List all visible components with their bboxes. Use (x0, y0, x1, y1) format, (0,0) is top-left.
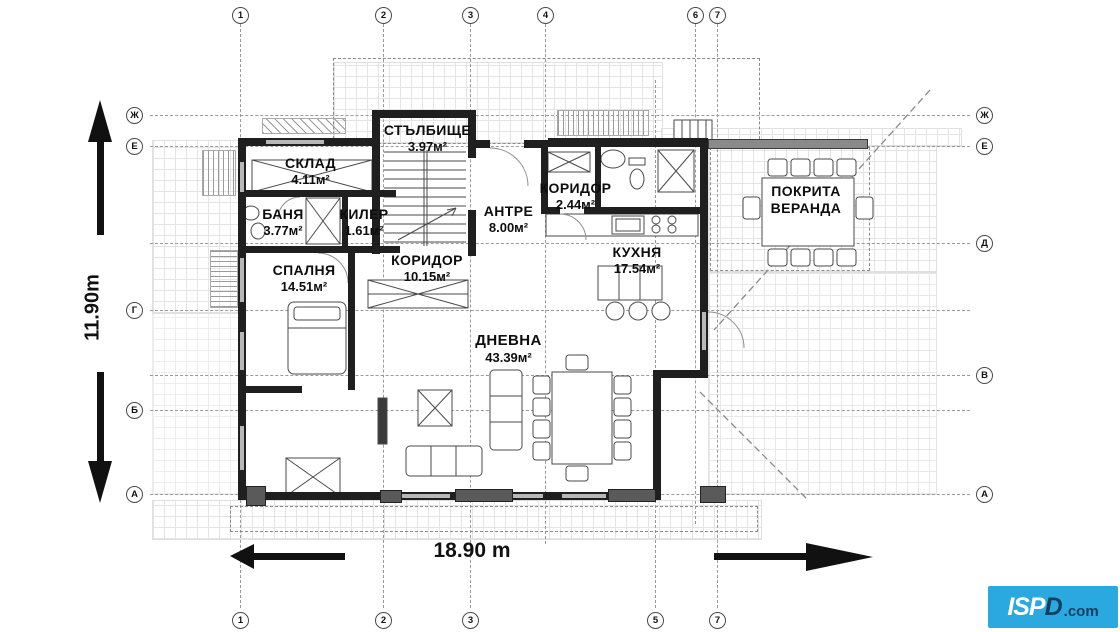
room-label-bathroom: БАНЯ 3.77м² (238, 206, 328, 238)
axis-label: Г (132, 305, 137, 316)
room-name: ДНЕВНА (456, 332, 561, 350)
wall-segment (653, 370, 708, 378)
room-area: 4.11м² (258, 172, 363, 187)
room-name: СТЪЛБИЩЕ (370, 122, 485, 139)
axis-marker-top-4: 4 (537, 7, 554, 24)
hall-closet (548, 152, 590, 172)
room-area: 3.77м² (238, 223, 328, 238)
room-name: КИЛЕР (318, 206, 410, 223)
room-area: 3.97м² (370, 139, 485, 154)
axis-marker-top-7: 7 (709, 7, 726, 24)
window (702, 312, 706, 350)
room-name: КОРИДОР (518, 180, 633, 197)
axis-marker-right-d: Д (976, 235, 993, 252)
axis-label: 1 (238, 10, 243, 21)
dining-set (533, 355, 631, 481)
axis-label: 1 (238, 615, 243, 626)
axis-marker-left-zh: Ж (126, 107, 143, 124)
axis-label: 5 (653, 615, 658, 626)
axis-label: 7 (715, 615, 720, 626)
axis-marker-right-zh: Ж (976, 107, 993, 124)
sofas-coffee-table (406, 370, 522, 476)
vertical-dimension-label: 11.90m (82, 248, 105, 368)
axis-label: В (981, 370, 988, 381)
axis-marker-top-2: 2 (375, 7, 392, 24)
axis-label: 3 (468, 10, 473, 21)
room-name: КУХНЯ (578, 244, 696, 261)
pier (700, 486, 726, 503)
pier (246, 486, 266, 506)
room-label-bedroom: СПАЛНЯ 14.51м² (250, 262, 358, 294)
axis-marker-top-1: 1 (232, 7, 249, 24)
room-name: АНТРЕ (456, 203, 561, 220)
axis-label: 2 (381, 10, 386, 21)
exterior-steps (202, 150, 236, 196)
axis-marker-left-e: Е (126, 138, 143, 155)
room-name: ПОКРИТА ВЕРАНДА (756, 183, 856, 216)
window (266, 140, 324, 144)
pier (608, 489, 656, 502)
room-area: 1.61м² (318, 223, 410, 238)
horizontal-dimension-label: 18.90 m (392, 539, 552, 563)
axis-marker-left-a: А (126, 486, 143, 503)
axis-label: 4 (543, 10, 548, 21)
axis-label: Б (131, 405, 138, 416)
axis-marker-bottom-2: 2 (375, 612, 392, 629)
axis-marker-bottom-3: 3 (462, 612, 479, 629)
axis-label: А (131, 489, 138, 500)
grill (674, 120, 712, 140)
plan-graphics (0, 0, 1120, 632)
ispd-logo: ISPD.com (988, 586, 1118, 628)
roof-diagonal-lines (700, 90, 930, 498)
room-label-corridor: КОРИДОР 10.15м² (368, 252, 486, 284)
room-label-kitchen: КУХНЯ 17.54м² (578, 244, 696, 276)
axis-label: Ж (130, 110, 139, 121)
axis-marker-left-g: Г (126, 302, 143, 319)
axis-marker-right-v: В (976, 367, 993, 384)
bedroom-furniture (286, 302, 387, 496)
axis-marker-bottom-7: 7 (709, 612, 726, 629)
axis-marker-right-e: Е (976, 138, 993, 155)
room-area: 8.00м² (456, 220, 561, 235)
wall-segment (372, 110, 476, 118)
axis-label: 3 (468, 615, 473, 626)
room-area: 43.39м² (456, 350, 561, 365)
room-name: СПАЛНЯ (250, 262, 358, 279)
room-label-veranda: ПОКРИТА ВЕРАНДА (756, 183, 856, 216)
pergola-slats (557, 110, 649, 136)
axis-marker-left-b: Б (126, 402, 143, 419)
window (240, 162, 244, 192)
logo-suffix: .com (1064, 603, 1099, 620)
axis-label: Ж (980, 110, 989, 121)
pier (455, 489, 513, 502)
room-name: СКЛАД (258, 155, 363, 172)
axis-label: Е (131, 141, 137, 152)
room-label-storage: СКЛАД 4.11м² (258, 155, 363, 187)
room-label-living: ДНЕВНА 43.39м² (456, 332, 561, 365)
room-name: БАНЯ (238, 206, 328, 223)
radiator (210, 250, 238, 308)
axis-label: Д (981, 238, 988, 249)
axis-label: А (981, 489, 988, 500)
room-area: 17.54м² (578, 261, 696, 276)
floor-plan-canvas: СТЪЛБИЩЕ 3.97м² СКЛАД 4.11м² БАНЯ 3.77м²… (0, 0, 1120, 632)
axis-marker-top-3: 3 (462, 7, 479, 24)
window (240, 332, 244, 370)
room-name: КОРИДОР (368, 252, 486, 269)
wall-segment (238, 386, 302, 393)
axis-marker-bottom-5: 5 (647, 612, 664, 629)
wall-segment (548, 138, 708, 147)
window (240, 258, 244, 302)
wall-segment (653, 370, 661, 500)
axis-marker-top-6: 6 (687, 7, 704, 24)
logo-brand-light: ISP (1007, 593, 1044, 622)
window (240, 426, 244, 470)
wall-segment (244, 190, 396, 197)
axis-label: 7 (715, 10, 720, 21)
axis-label: Е (981, 141, 987, 152)
pier (380, 490, 402, 503)
room-area: 14.51м² (250, 279, 358, 294)
canopy-edge (262, 118, 346, 134)
pergola-beam (708, 139, 868, 149)
axis-label: 2 (381, 615, 386, 626)
room-label-closet: КИЛЕР 1.61м² (318, 206, 410, 238)
axis-marker-right-a: А (976, 486, 993, 503)
room-label-staircase: СТЪЛБИЩЕ 3.97м² (370, 122, 485, 154)
axis-marker-bottom-1: 1 (232, 612, 249, 629)
logo-brand-dark: D (1045, 593, 1062, 622)
window (562, 494, 606, 498)
room-label-hall: АНТРЕ 8.00м² (456, 203, 561, 235)
axis-label: 6 (693, 10, 698, 21)
room-area: 10.15м² (368, 269, 486, 284)
corridor-wardrobe (368, 280, 468, 308)
